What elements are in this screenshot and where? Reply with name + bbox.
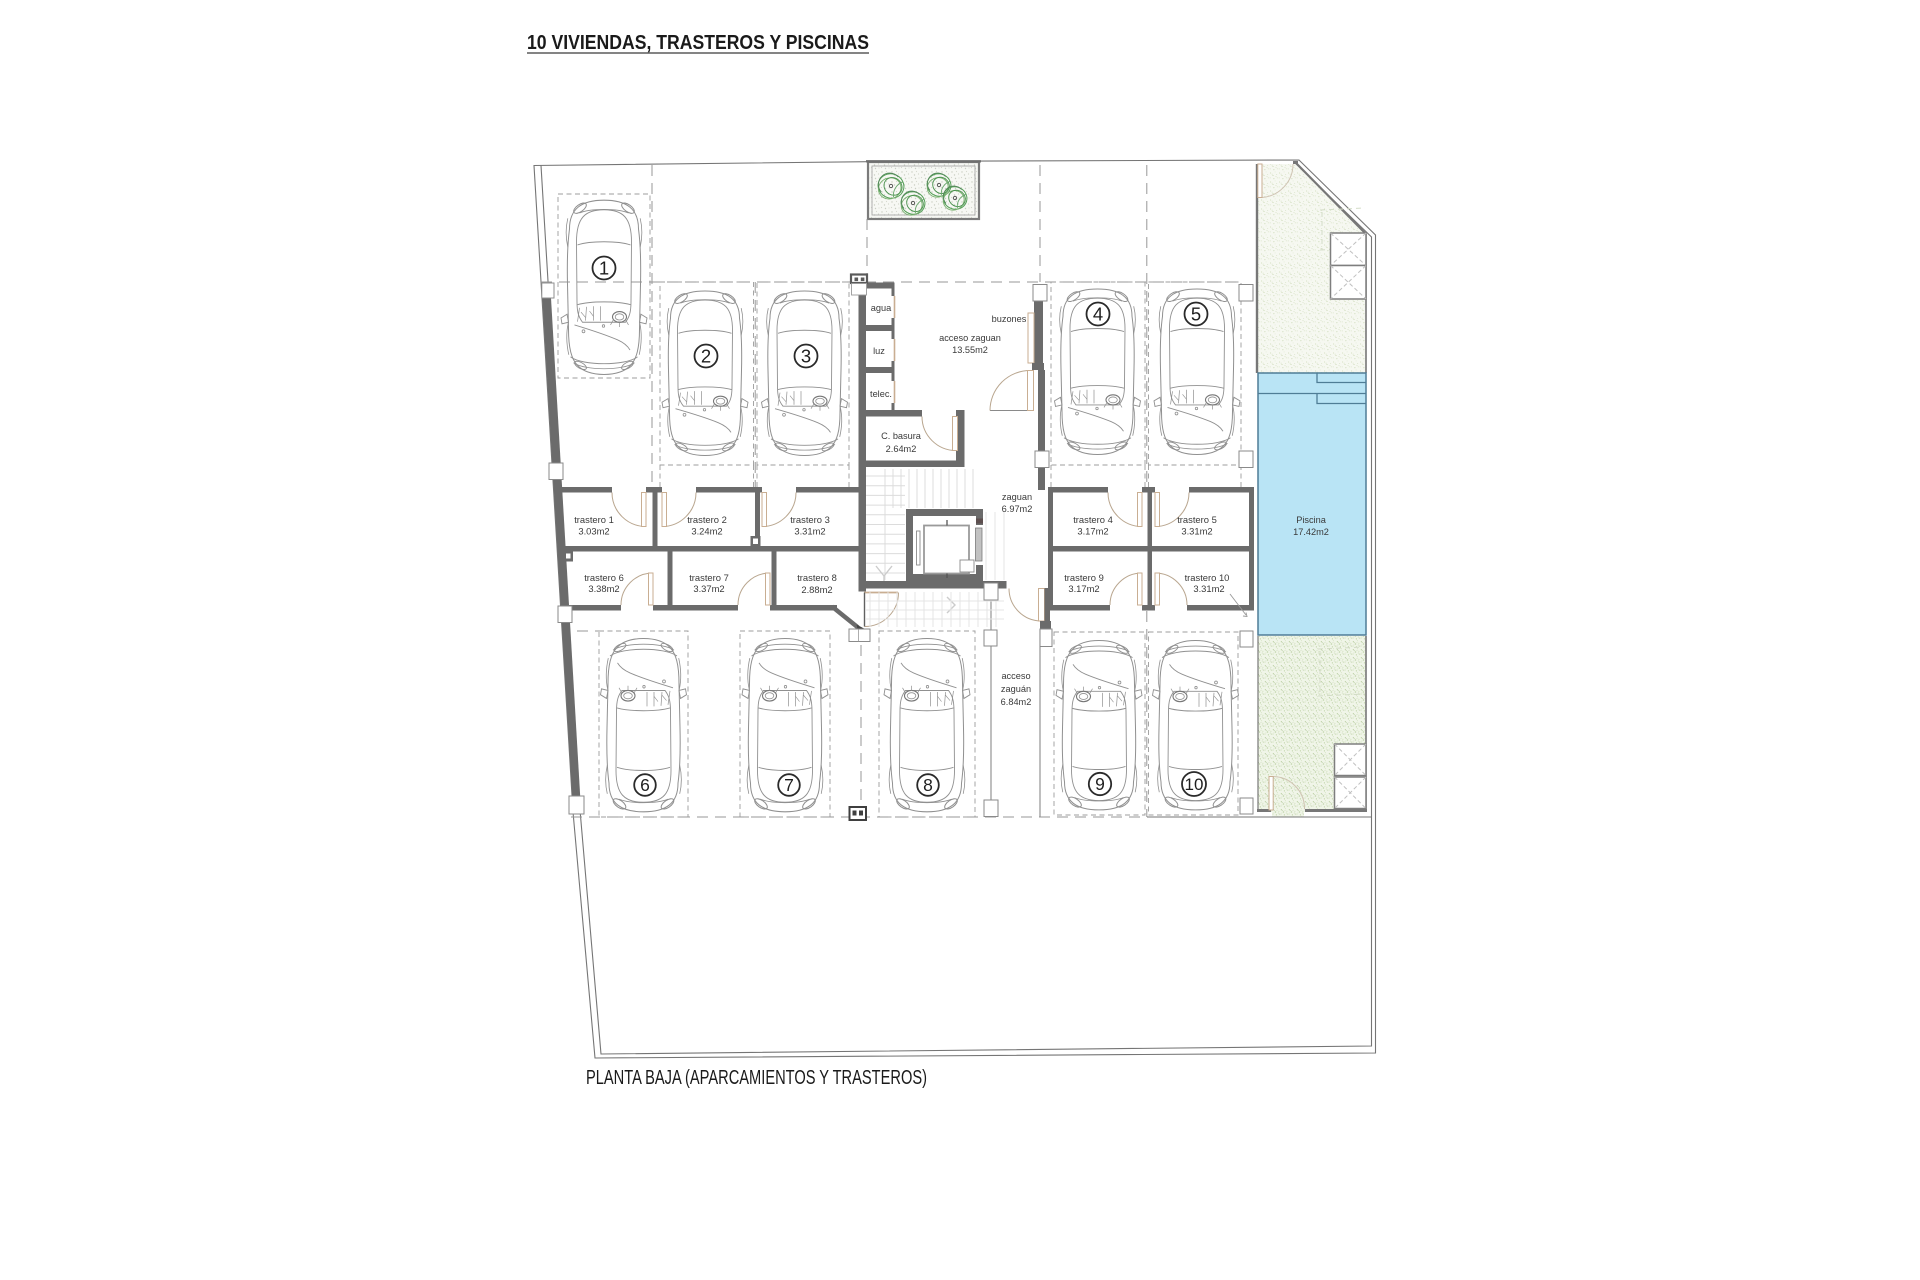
svg-text:6.97m2: 6.97m2: [1002, 504, 1033, 514]
svg-text:9: 9: [1095, 774, 1105, 794]
svg-text:3.38m2: 3.38m2: [588, 583, 619, 594]
svg-text:trastero 7: trastero 7: [689, 572, 729, 583]
svg-text:6.84m2: 6.84m2: [1001, 697, 1032, 707]
svg-text:13.55m2: 13.55m2: [952, 345, 988, 355]
svg-text:3.03m2: 3.03m2: [578, 526, 609, 537]
svg-text:3.31m2: 3.31m2: [1181, 526, 1212, 537]
svg-text:3.31m2: 3.31m2: [794, 526, 825, 537]
svg-text:acceso zaguan: acceso zaguan: [939, 333, 1001, 343]
svg-text:PLANTA BAJA (APARCAMIENTOS Y T: PLANTA BAJA (APARCAMIENTOS Y TRASTEROS): [586, 1066, 927, 1089]
svg-text:6: 6: [640, 775, 650, 795]
svg-text:C. basura: C. basura: [881, 431, 922, 441]
svg-text:4: 4: [1093, 303, 1103, 324]
svg-text:zaguán: zaguán: [1001, 684, 1031, 694]
svg-text:8: 8: [923, 775, 933, 795]
svg-text:10: 10: [1185, 775, 1204, 794]
svg-text:5: 5: [1191, 303, 1201, 324]
svg-text:trastero 8: trastero 8: [797, 572, 837, 583]
svg-text:3.31m2: 3.31m2: [1193, 583, 1224, 594]
svg-text:agua: agua: [871, 303, 892, 313]
svg-text:Piscina: Piscina: [1296, 515, 1327, 525]
svg-text:trastero 3: trastero 3: [790, 514, 830, 525]
svg-text:telec.: telec.: [870, 389, 892, 399]
svg-text:7: 7: [784, 775, 794, 795]
svg-text:trastero 6: trastero 6: [584, 572, 624, 583]
svg-text:trastero 10: trastero 10: [1185, 572, 1230, 583]
svg-text:1: 1: [599, 257, 609, 278]
svg-text:3.17m2: 3.17m2: [1077, 526, 1108, 537]
svg-text:trastero 5: trastero 5: [1177, 514, 1217, 525]
svg-text:3: 3: [801, 345, 811, 366]
svg-text:2: 2: [701, 345, 711, 366]
svg-text:luz: luz: [873, 346, 885, 356]
svg-text:trastero 4: trastero 4: [1073, 514, 1113, 525]
svg-text:trastero 2: trastero 2: [687, 514, 727, 525]
svg-text:10 VIVIENDAS, TRASTEROS Y PISC: 10 VIVIENDAS, TRASTEROS Y PISCINAS: [527, 31, 869, 54]
svg-text:2.64m2: 2.64m2: [886, 444, 917, 454]
svg-text:3.24m2: 3.24m2: [691, 526, 722, 537]
svg-text:17.42m2: 17.42m2: [1293, 527, 1329, 537]
svg-text:trastero 9: trastero 9: [1064, 572, 1104, 583]
svg-text:buzones: buzones: [992, 314, 1027, 324]
svg-text:zaguan: zaguan: [1002, 492, 1032, 502]
svg-text:trastero 1: trastero 1: [574, 514, 614, 525]
svg-text:acceso: acceso: [1001, 671, 1030, 681]
svg-text:3.17m2: 3.17m2: [1068, 583, 1099, 594]
svg-text:3.37m2: 3.37m2: [693, 583, 724, 594]
svg-text:2.88m2: 2.88m2: [801, 584, 832, 595]
